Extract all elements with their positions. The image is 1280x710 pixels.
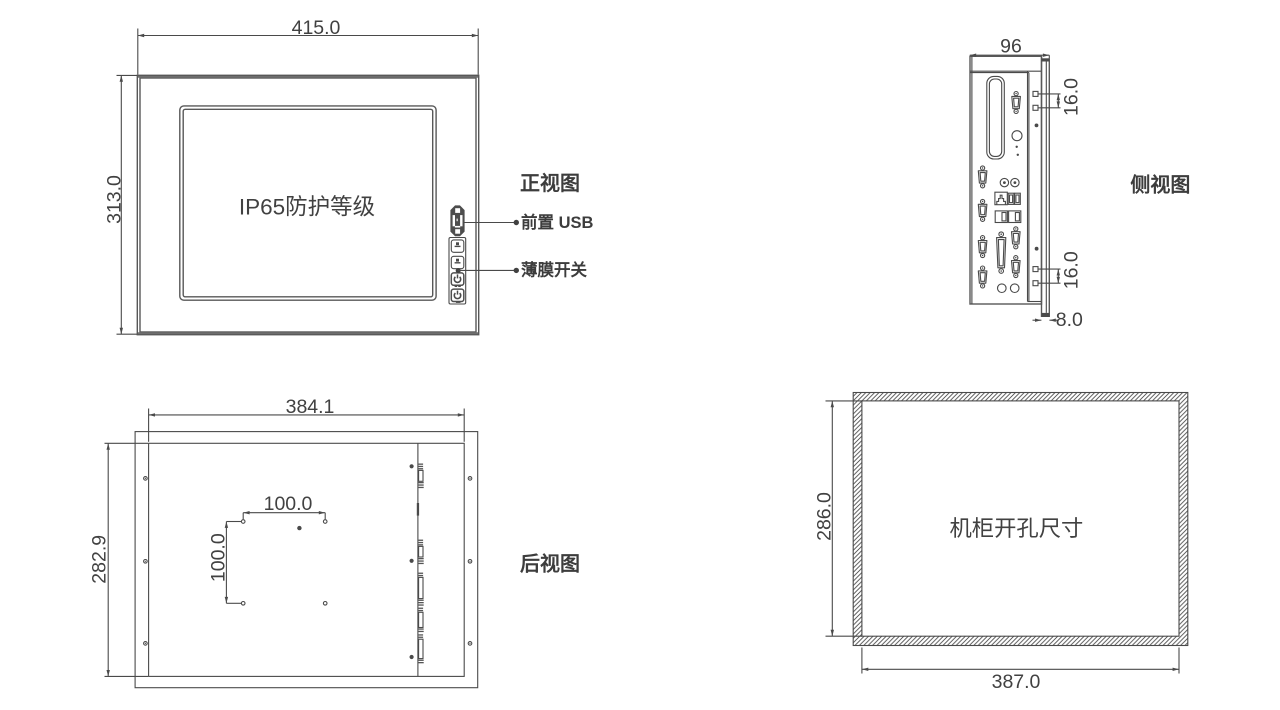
svg-text:387.0: 387.0	[992, 671, 1041, 693]
svg-text:282.9: 282.9	[89, 535, 111, 584]
svg-text:16.0: 16.0	[1061, 78, 1083, 116]
svg-text:384.1: 384.1	[286, 396, 335, 418]
svg-text:前置 USB: 前置 USB	[521, 212, 594, 232]
svg-text:正视图: 正视图	[520, 172, 580, 195]
svg-text:415.0: 415.0	[292, 17, 341, 39]
svg-text:8.0: 8.0	[1056, 309, 1083, 331]
svg-text:后视图: 后视图	[520, 552, 580, 575]
svg-text:薄膜开关: 薄膜开关	[521, 260, 588, 280]
svg-text:96: 96	[1000, 35, 1022, 57]
svg-text:100.0: 100.0	[208, 533, 230, 582]
svg-text:16.0: 16.0	[1061, 251, 1083, 289]
svg-text:313.0: 313.0	[104, 175, 126, 224]
svg-text:IP65防护等级: IP65防护等级	[239, 195, 375, 220]
svg-text:100.0: 100.0	[264, 493, 313, 515]
svg-text:机柜开孔尺寸: 机柜开孔尺寸	[950, 516, 1084, 541]
svg-text:286.0: 286.0	[814, 492, 836, 541]
svg-text:侧视图: 侧视图	[1130, 172, 1190, 196]
